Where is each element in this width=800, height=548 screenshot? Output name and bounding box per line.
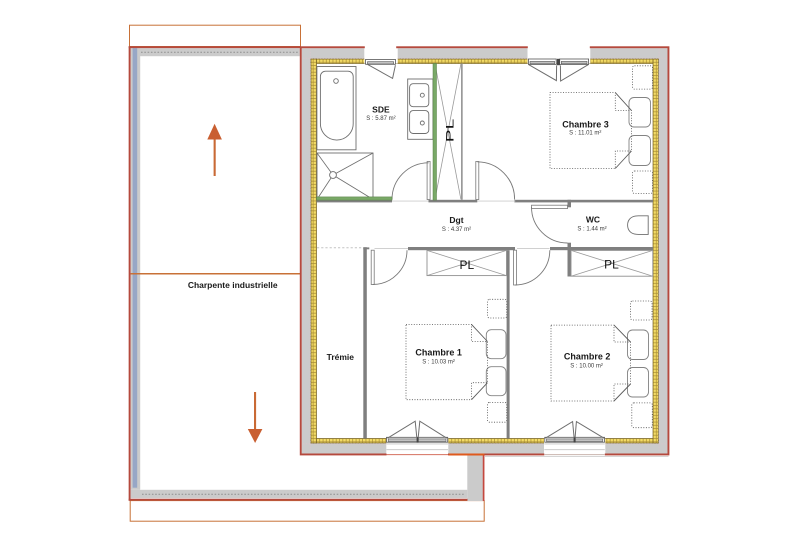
svg-text:S : 1.44 m²: S : 1.44 m² (577, 226, 606, 232)
svg-text:PL: PL (604, 258, 619, 272)
svg-text:S : 4.37 m²: S : 4.37 m² (442, 227, 471, 233)
svg-text:WC: WC (586, 215, 600, 225)
svg-text:PL: PL (459, 258, 474, 272)
svg-text:PL: PL (444, 119, 456, 143)
svg-text:Chambre 3: Chambre 3 (562, 120, 609, 130)
svg-text:Chambre 1: Chambre 1 (415, 348, 462, 358)
svg-text:S : 10.03 m²: S : 10.03 m² (422, 359, 455, 365)
svg-text:S : 5.87 m²: S : 5.87 m² (366, 116, 395, 122)
svg-text:Dgt: Dgt (449, 215, 463, 225)
svg-text:Charpente industrielle: Charpente industrielle (188, 280, 278, 290)
svg-text:Chambre 2: Chambre 2 (564, 352, 611, 362)
svg-text:S : 10.00 m²: S : 10.00 m² (570, 364, 603, 370)
svg-text:S : 11.01 m²: S : 11.01 m² (569, 131, 601, 137)
svg-text:Trémie: Trémie (327, 352, 355, 362)
svg-text:SDE: SDE (372, 105, 390, 115)
